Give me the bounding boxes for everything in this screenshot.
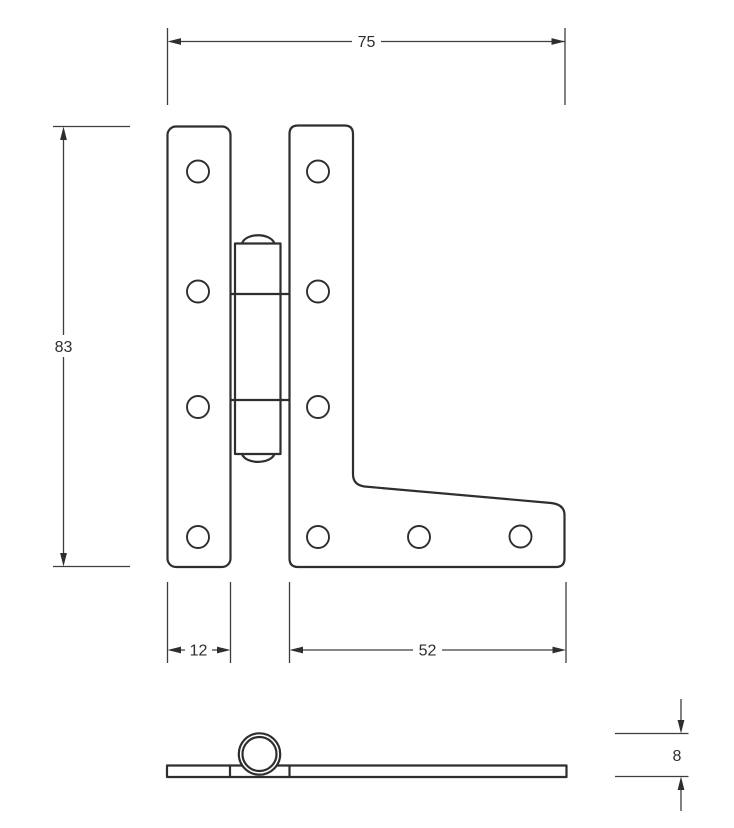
front-view — [168, 126, 565, 568]
screw-hole — [187, 396, 209, 418]
profile-plate — [167, 766, 567, 778]
dimension-bottom-flange-width: 52 — [290, 582, 567, 663]
screw-hole — [510, 526, 532, 548]
dimension-overall-height: 83 — [48, 127, 130, 567]
barrel-body — [235, 244, 281, 455]
screw-hole — [187, 526, 209, 548]
screw-hole — [307, 161, 329, 183]
screw-hole — [408, 526, 430, 548]
dimension-overall-width: 75 — [168, 28, 566, 105]
dimension-barrel-thickness: 8 — [615, 699, 689, 811]
dim-label-overall-height: 83 — [55, 339, 73, 356]
dim-label-barrel-thickness: 8 — [673, 748, 682, 765]
screw-hole — [187, 281, 209, 303]
screw-hole — [307, 396, 329, 418]
screw-hole — [307, 281, 329, 303]
hinge-technical-drawing: 75 83 12 52 8 — [0, 0, 734, 828]
hinge-barrel — [231, 235, 290, 462]
screw-hole — [307, 526, 329, 548]
screw-hole — [187, 161, 209, 183]
dim-label-overall-width: 75 — [358, 34, 376, 51]
right-leaf-l-plate — [290, 126, 565, 568]
left-leaf-plate — [168, 127, 231, 568]
drawing-canvas: 75 83 12 52 8 — [0, 0, 734, 828]
barrel-pin-top-cap — [242, 235, 275, 243]
barrel-pin-bottom-cap — [242, 454, 275, 462]
dimension-narrow-leaf-width: 12 — [168, 582, 231, 663]
dim-label-bottom-flange-width: 52 — [419, 643, 437, 660]
profile-barrel-outer — [239, 733, 280, 774]
profile-view — [167, 733, 567, 777]
dim-label-narrow-leaf-width: 12 — [190, 643, 208, 660]
